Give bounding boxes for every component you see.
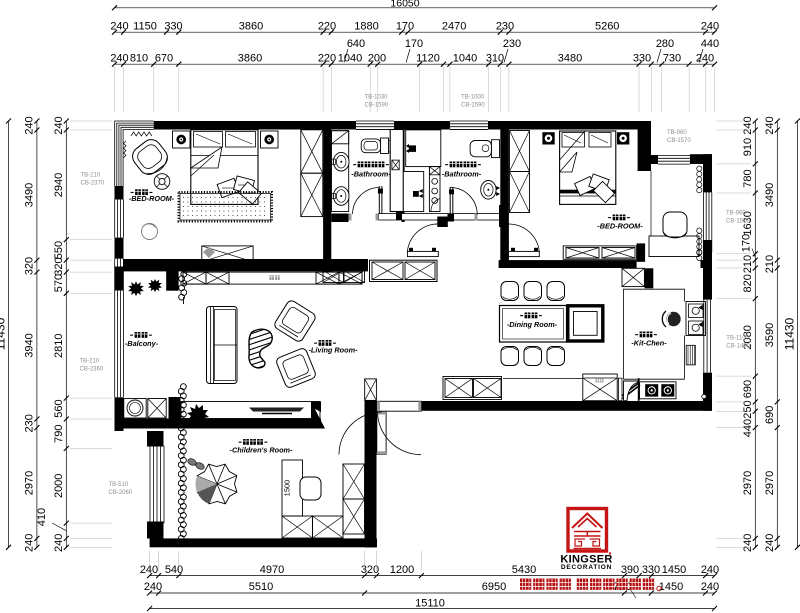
svg-text:230: 230 [23,414,35,432]
svg-text:240: 240 [742,116,754,134]
svg-text:240: 240 [764,534,776,552]
svg-text:240: 240 [701,21,719,33]
svg-text:240: 240 [23,534,35,552]
svg-text:170: 170 [396,21,414,33]
svg-text:240: 240 [140,564,158,576]
svg-text:TB-960: TB-960 [726,211,746,217]
svg-text:DECORATION: DECORATION [561,564,612,571]
svg-text:CB-1590: CB-1590 [365,102,389,108]
svg-text:-Bathroom-: -Bathroom- [351,169,391,178]
svg-text:CB-1450: CB-1450 [726,344,750,350]
svg-text:170: 170 [741,234,753,252]
svg-text:240: 240 [701,581,719,593]
svg-text:TB-960: TB-960 [667,130,687,136]
svg-text:440: 440 [701,38,719,50]
svg-text:640: 640 [347,38,365,50]
svg-text:3490: 3490 [764,183,776,207]
svg-text:TB-510: TB-510 [109,482,129,488]
svg-text:240: 240 [696,53,714,65]
svg-text:3590: 3590 [764,323,776,347]
svg-text:330: 330 [164,21,182,33]
svg-text:730: 730 [663,53,681,65]
svg-text:3860: 3860 [238,53,262,65]
svg-text:TB-1000: TB-1000 [461,94,485,100]
svg-text:2810: 2810 [53,333,65,357]
svg-text:440: 440 [742,419,754,437]
svg-text:170: 170 [405,38,423,50]
svg-text:4970: 4970 [260,564,284,576]
svg-text:220: 220 [318,21,336,33]
svg-text:TB-1100: TB-1100 [726,336,749,342]
svg-text:810: 810 [130,53,148,65]
svg-text:TB-1030: TB-1030 [365,94,389,100]
svg-text:1150: 1150 [133,21,157,33]
svg-text:1500: 1500 [283,480,292,497]
svg-text:390: 390 [621,564,639,576]
svg-text:-Living Room-: -Living Room- [308,346,358,355]
svg-text:320: 320 [53,257,65,275]
svg-text:CB-1570: CB-1570 [667,138,691,144]
svg-text:210: 210 [742,255,754,273]
svg-text:240: 240 [110,53,128,65]
svg-text:-Dining Room-: -Dining Room- [507,320,558,329]
svg-text:-Children's Room-: -Children's Room- [230,446,294,455]
svg-text:2970: 2970 [764,471,776,495]
svg-text:210: 210 [764,255,776,273]
svg-text:1040: 1040 [338,53,362,65]
svg-text:330: 330 [633,53,651,65]
svg-text:3860: 3860 [239,21,263,33]
svg-text:690: 690 [764,406,776,424]
svg-text:560: 560 [53,399,65,417]
svg-text:780: 780 [742,169,754,187]
svg-text:1120: 1120 [416,53,440,65]
svg-text:240: 240 [742,534,754,552]
svg-text:15110: 15110 [415,597,445,609]
svg-text:TB-210: TB-210 [80,358,100,364]
svg-text:230: 230 [503,38,521,50]
svg-text:5510: 5510 [249,581,273,593]
svg-text:790: 790 [53,425,65,443]
svg-text:2970: 2970 [23,471,35,495]
svg-text:-Bathroom-: -Bathroom- [442,169,482,178]
svg-text:1450: 1450 [662,564,686,576]
svg-text:2940: 2940 [53,173,65,197]
svg-text:1200: 1200 [390,564,414,576]
svg-text:-BED-ROOM-: -BED-ROOM- [597,222,643,231]
svg-text:240: 240 [23,116,35,134]
svg-text:CB-2370: CB-2370 [81,180,105,186]
svg-text:-BED-ROOM-: -BED-ROOM- [129,194,175,203]
svg-text:3480: 3480 [558,53,582,65]
svg-text:-Kit-Chen-: -Kit-Chen- [631,339,667,348]
svg-text:240: 240 [144,581,162,593]
svg-text:670: 670 [155,53,173,65]
svg-text:310: 310 [486,53,504,65]
svg-text:220: 220 [318,53,336,65]
svg-text:820: 820 [742,274,754,292]
svg-text:3940: 3940 [23,333,35,357]
svg-text:1450: 1450 [659,581,683,593]
svg-text:240: 240 [53,534,65,552]
svg-text:240: 240 [53,116,65,134]
svg-text:240: 240 [110,21,128,33]
svg-text:200: 200 [368,53,386,65]
svg-text:910: 910 [742,138,754,156]
svg-text:5430: 5430 [512,564,536,576]
svg-text:2000: 2000 [53,474,65,498]
svg-text:240: 240 [701,564,719,576]
svg-text:CB-1590: CB-1590 [461,102,485,108]
svg-text:CB-1570: CB-1570 [726,219,750,225]
svg-text:CB-2360: CB-2360 [80,366,104,372]
svg-text:-Balcony-: -Balcony- [125,339,159,348]
svg-text:TB-210: TB-210 [81,172,101,178]
svg-text:CB-2060: CB-2060 [109,490,133,496]
svg-text:540: 540 [165,564,183,576]
svg-text:2970: 2970 [742,471,754,495]
svg-text:550: 550 [53,241,65,259]
svg-text:240: 240 [764,116,776,134]
svg-text:5260: 5260 [595,21,619,33]
svg-text:280: 280 [656,38,674,50]
svg-text:330: 330 [642,564,660,576]
svg-text:410: 410 [36,508,48,526]
svg-text:3490: 3490 [23,183,35,207]
svg-text:690: 690 [742,380,754,398]
svg-text:250: 250 [742,400,754,418]
svg-text:1040: 1040 [453,53,477,65]
svg-text:6950: 6950 [482,581,506,593]
svg-text:11430: 11430 [783,317,797,350]
svg-text:16050: 16050 [390,0,419,10]
svg-text:230: 230 [496,21,514,33]
svg-text:320: 320 [23,257,35,275]
svg-text:570: 570 [53,274,65,292]
svg-text:2470: 2470 [442,21,466,33]
svg-text:1880: 1880 [354,21,378,33]
svg-text:11430: 11430 [0,317,8,350]
